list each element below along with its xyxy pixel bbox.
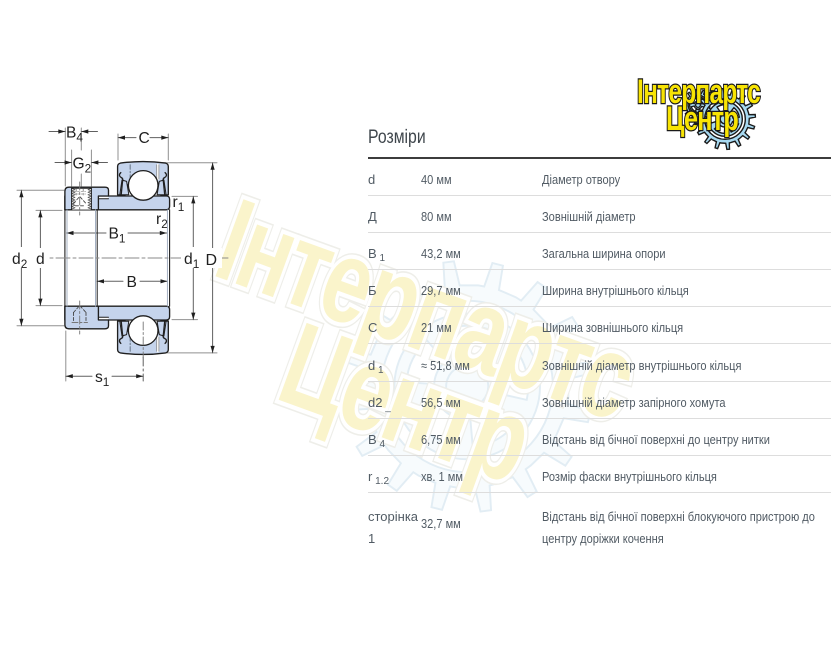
svg-text:B: B <box>127 274 137 291</box>
svg-text:B1: B1 <box>109 226 126 246</box>
svg-text:G2: G2 <box>73 156 92 176</box>
svg-text:D: D <box>206 252 218 269</box>
svg-text:r2: r2 <box>156 211 168 231</box>
svg-text:d: d <box>36 251 45 268</box>
svg-text:s1: s1 <box>95 369 109 389</box>
svg-text:B4: B4 <box>66 125 83 145</box>
svg-text:C: C <box>139 130 150 147</box>
svg-text:r1: r1 <box>173 194 185 214</box>
svg-text:Центр: Центр <box>666 100 738 138</box>
